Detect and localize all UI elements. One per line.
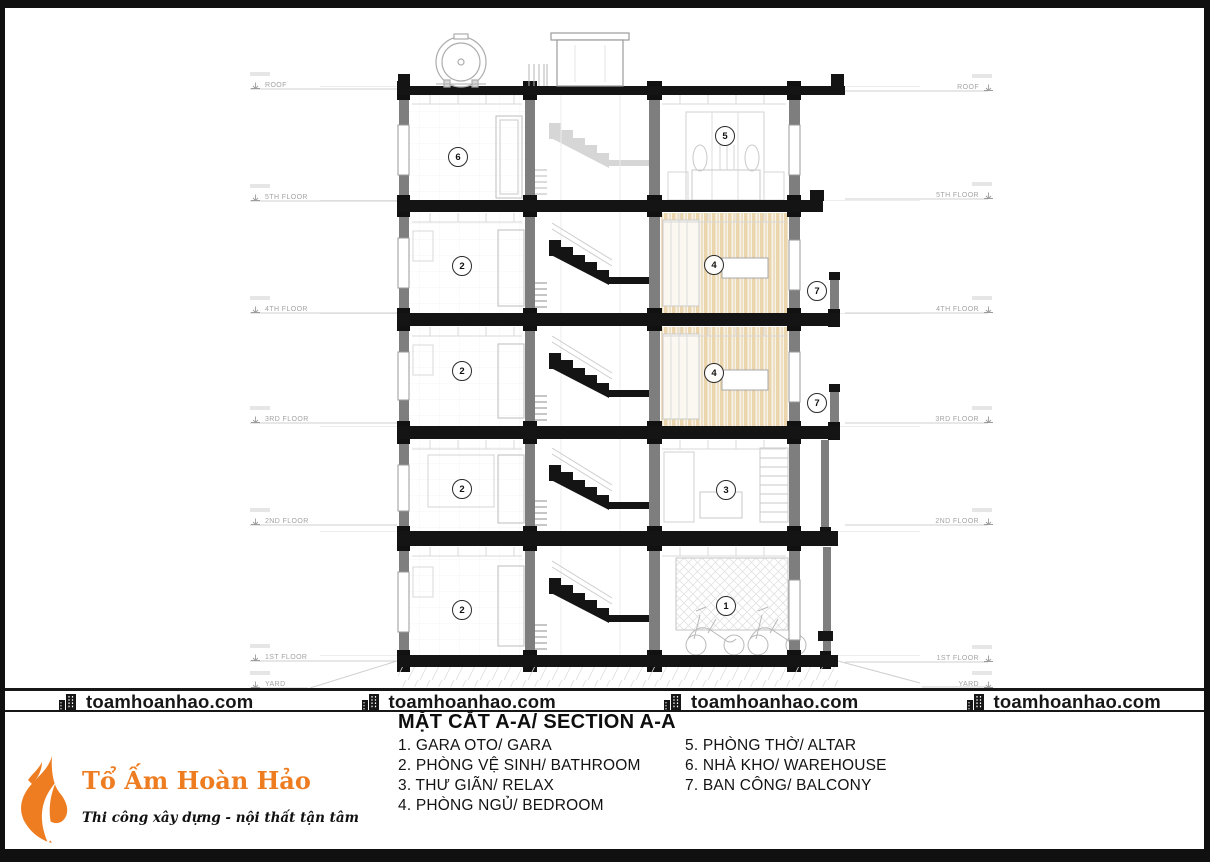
legend-item: 4. PHÒNG NGỦ/ BEDROOM bbox=[398, 796, 641, 816]
legend-column-left: 1. GARA OTO/ GARA2. PHÒNG VỆ SINH/ BATHR… bbox=[398, 736, 641, 816]
water-tank bbox=[436, 34, 486, 87]
elevation-value-blur bbox=[250, 644, 270, 648]
room-badge-bathroom: 2 bbox=[452, 600, 472, 620]
legend-item: 1. GARA OTO/ GARA bbox=[398, 736, 641, 756]
level-name: 1ST FLOOR bbox=[937, 655, 979, 662]
elevation-value-blur bbox=[972, 296, 992, 300]
level-label-3rd-floor: 3RD FLOOR bbox=[250, 414, 309, 424]
elevation-value-blur bbox=[972, 182, 992, 186]
building-icon bbox=[966, 694, 986, 711]
building-icon bbox=[58, 694, 78, 711]
level-name: YARD bbox=[265, 681, 286, 688]
room-badge-bathroom: 2 bbox=[452, 361, 472, 381]
room-badge-altar: 5 bbox=[715, 126, 735, 146]
legend-item: 2. PHÒNG VỆ SINH/ BATHROOM bbox=[398, 756, 641, 776]
company-name: Tổ Ấm Hoàn Hảo bbox=[82, 766, 311, 795]
room-badge-balcony: 7 bbox=[807, 393, 827, 413]
level-name: 3RD FLOOR bbox=[935, 416, 979, 423]
level-name: ROOF bbox=[265, 82, 287, 89]
elevation-value-blur bbox=[250, 72, 270, 76]
level-name: 3RD FLOOR bbox=[265, 416, 309, 423]
bulkhead-cap bbox=[551, 33, 629, 40]
level-label-4th-floor: 4TH FLOOR bbox=[876, 304, 994, 314]
company-logo: Tổ Ấm Hoàn Hảo Thi công xây dựng - nội t… bbox=[12, 752, 282, 849]
room-badge-bedroom: 4 bbox=[704, 363, 724, 383]
level-label-roof: ROOF bbox=[250, 80, 287, 90]
elevation-value-blur bbox=[972, 508, 992, 512]
room-badge-bathroom: 2 bbox=[452, 256, 472, 276]
watermark-text: toamhoanhao.com bbox=[994, 691, 1161, 713]
frame-right bbox=[1204, 0, 1210, 862]
elevator-bulkhead bbox=[557, 40, 623, 86]
level-label-1st-floor: 1ST FLOOR bbox=[250, 652, 307, 662]
level-label-1st-floor: 1ST FLOOR bbox=[876, 653, 994, 663]
level-label-2nd-floor: 2ND FLOOR bbox=[876, 516, 994, 526]
level-name: ROOF bbox=[957, 84, 979, 91]
ground-hatch bbox=[398, 667, 838, 687]
section-title: MẶT CẮT A-A/ SECTION A-A bbox=[398, 711, 676, 734]
level-label-4th-floor: 4TH FLOOR bbox=[250, 304, 308, 314]
elevation-value-blur bbox=[972, 671, 992, 675]
staircase bbox=[529, 95, 660, 655]
legend-item: 5. PHÒNG THỜ/ ALTAR bbox=[685, 736, 887, 756]
building-icon bbox=[663, 694, 683, 711]
company-tagline: Thi công xây dựng - nội thất tận tâm bbox=[82, 810, 359, 826]
watermark-band: toamhoanhao.comtoamhoanhao.comtoamhoanha… bbox=[0, 688, 1210, 712]
legend-column-right: 5. PHÒNG THỜ/ ALTAR6. NHÀ KHO/ WAREHOUSE… bbox=[685, 736, 887, 796]
elevation-value-blur bbox=[250, 406, 270, 410]
room-badge-bathroom: 2 bbox=[452, 479, 472, 499]
elevation-value-blur bbox=[250, 508, 270, 512]
watermark-item: toamhoanhao.com bbox=[908, 691, 1210, 713]
room-badge-gara: 1 bbox=[716, 596, 736, 616]
leader-lines bbox=[250, 89, 988, 688]
level-label-5th-floor: 5TH FLOOR bbox=[876, 190, 994, 200]
roof-structures bbox=[436, 33, 629, 87]
level-name: YARD bbox=[958, 681, 979, 688]
watermark-item: toamhoanhao.com bbox=[303, 691, 606, 713]
elevation-value-blur bbox=[972, 406, 992, 410]
elevation-value-blur bbox=[250, 184, 270, 188]
level-name: 1ST FLOOR bbox=[265, 654, 307, 661]
level-name: 5TH FLOOR bbox=[936, 192, 979, 199]
watermark-text: toamhoanhao.com bbox=[389, 691, 556, 713]
level-label-2nd-floor: 2ND FLOOR bbox=[250, 516, 309, 526]
frame-left bbox=[0, 0, 5, 862]
level-name: 2ND FLOOR bbox=[935, 518, 979, 525]
frame-top bbox=[0, 0, 1210, 8]
watermark-text: toamhoanhao.com bbox=[691, 691, 858, 713]
watermark-item: toamhoanhao.com bbox=[0, 691, 303, 713]
level-name: 2ND FLOOR bbox=[265, 518, 309, 525]
legend-item: 6. NHÀ KHO/ WAREHOUSE bbox=[685, 756, 887, 776]
frame-bottom bbox=[0, 849, 1210, 862]
watermark-item: toamhoanhao.com bbox=[605, 691, 908, 713]
room-badge-warehouse: 6 bbox=[448, 147, 468, 167]
room-badge-bedroom: 4 bbox=[704, 255, 724, 275]
legend-item: 3. THƯ GIÃN/ RELAX bbox=[398, 776, 641, 796]
elevation-value-blur bbox=[250, 296, 270, 300]
room-badge-relax: 3 bbox=[716, 480, 736, 500]
flame-logo-icon bbox=[18, 756, 70, 844]
elevation-value-blur bbox=[972, 74, 992, 78]
level-name: 4TH FLOOR bbox=[265, 306, 308, 313]
elevation-value-blur bbox=[250, 671, 270, 675]
elevation-value-blur bbox=[972, 645, 992, 649]
architectural-drawing-page: ROOF5TH FLOOR4TH FLOOR3RD FLOOR2ND FLOOR… bbox=[0, 0, 1210, 862]
building-icon bbox=[361, 694, 381, 711]
room-badge-balcony: 7 bbox=[807, 281, 827, 301]
level-label-3rd-floor: 3RD FLOOR bbox=[876, 414, 994, 424]
level-label-roof: ROOF bbox=[876, 82, 994, 92]
level-label-5th-floor: 5TH FLOOR bbox=[250, 192, 308, 202]
legend-item: 7. BAN CÔNG/ BALCONY bbox=[685, 776, 887, 796]
watermark-text: toamhoanhao.com bbox=[86, 691, 253, 713]
level-name: 4TH FLOOR bbox=[936, 306, 979, 313]
level-name: 5TH FLOOR bbox=[265, 194, 308, 201]
